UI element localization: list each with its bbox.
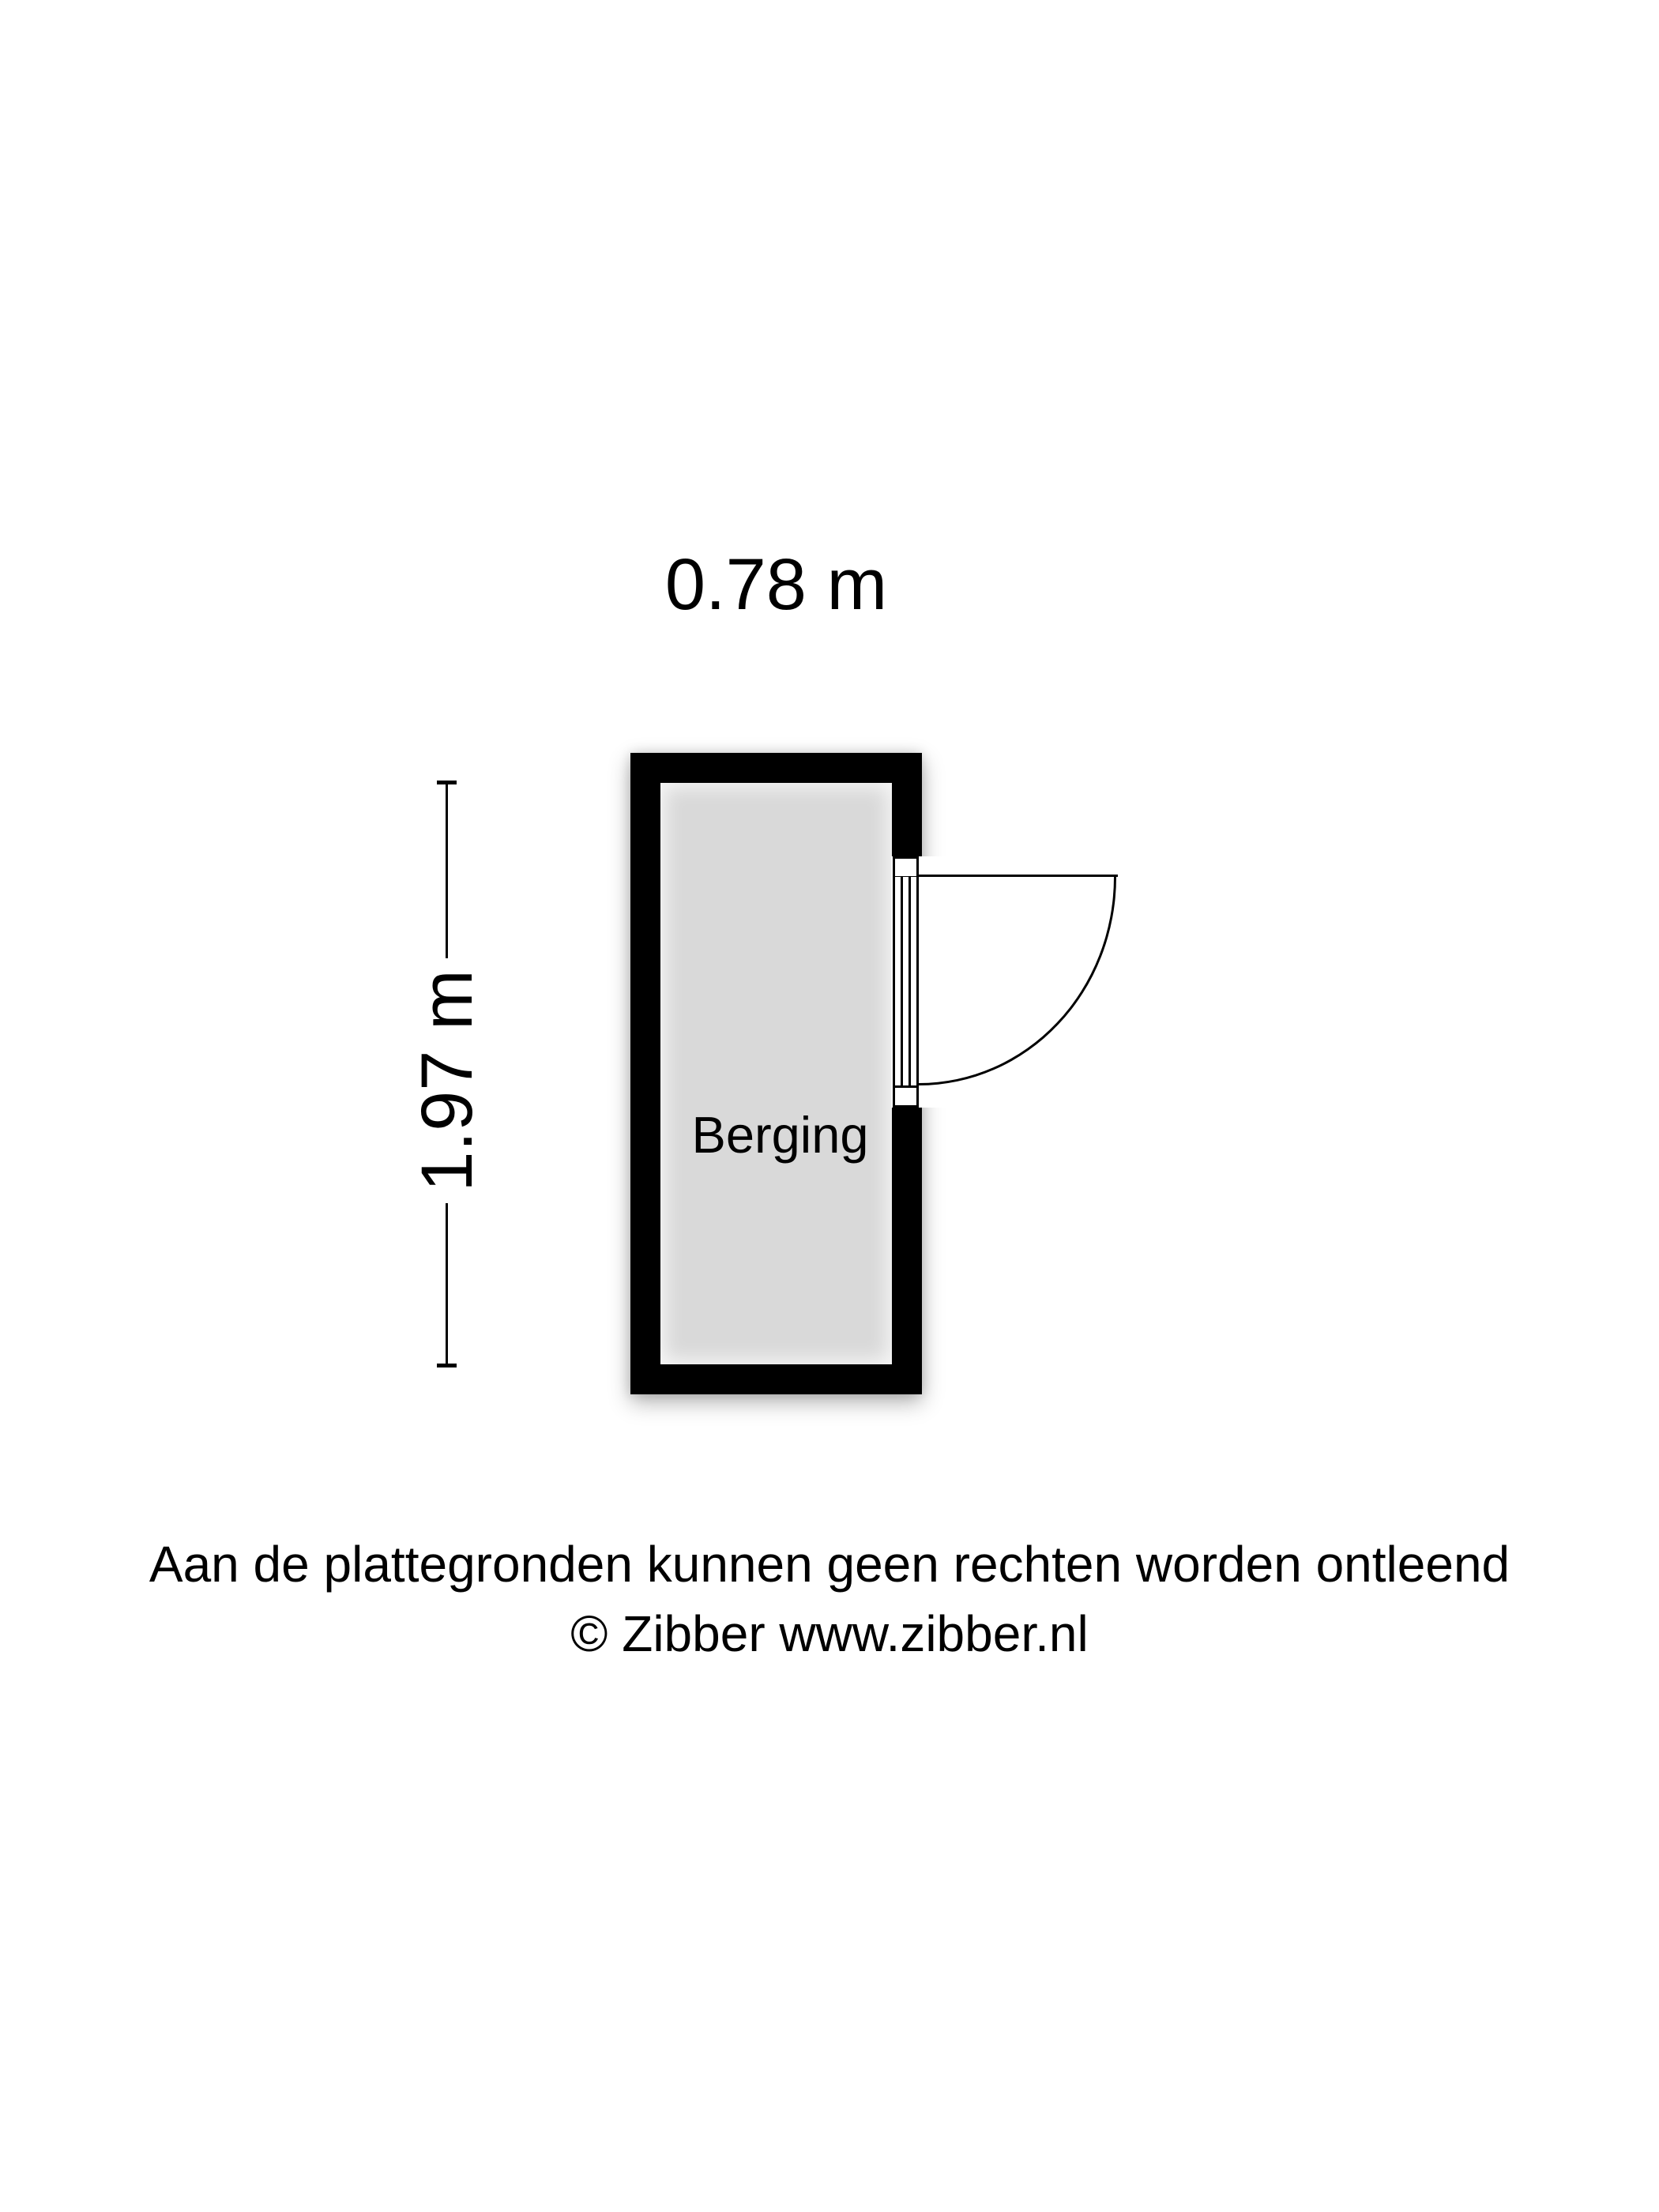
footer: Aan de plattegronden kunnen geen rechten… [0,1529,1659,1668]
room-label: Berging [660,1109,892,1161]
dimension-width-label: 0.78 m [630,548,922,621]
dimension-tick-bottom [437,1364,457,1367]
door-jamb-top [893,856,919,878]
dimension-line-lower [446,1203,448,1366]
dimension-line-upper [446,783,448,958]
disclaimer-text: Aan de plattegronden kunnen geen rechten… [0,1529,1659,1599]
door-swing-arc [919,877,1116,1085]
copyright-text: © Zibber www.zibber.nl [0,1599,1659,1668]
room-walls: Berging [630,753,922,1394]
door-jamb-bottom [893,1085,919,1108]
door-panel [893,877,919,1087]
door-panel-line [908,877,911,1087]
door-panel-line [901,877,903,1087]
room-floor: Berging [660,783,892,1364]
dimension-height-label: 1.97 m [411,969,483,1191]
